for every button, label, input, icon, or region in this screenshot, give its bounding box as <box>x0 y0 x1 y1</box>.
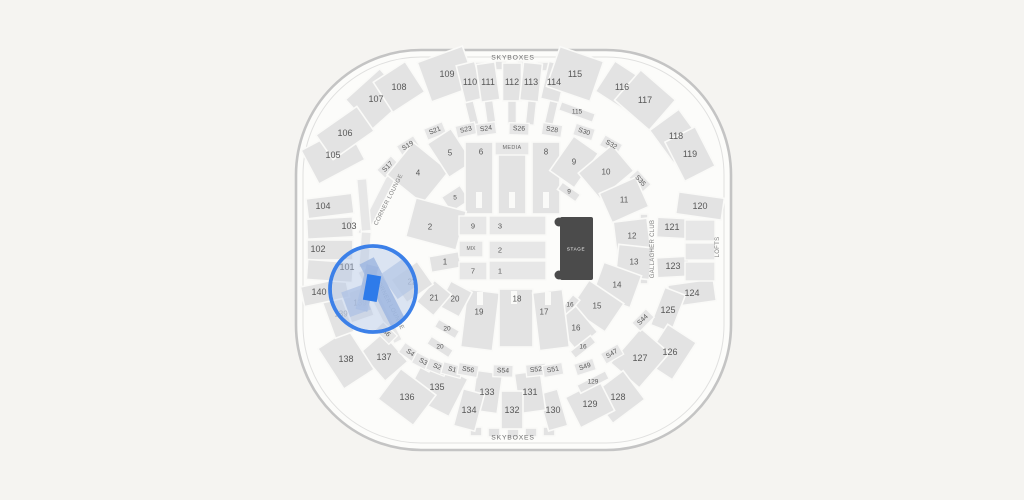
label-119: 119 <box>683 149 697 159</box>
label-i10: 10 <box>602 168 611 177</box>
label-112: 112 <box>505 77 519 87</box>
label-i16a: 16 <box>566 302 574 309</box>
label-132: 132 <box>504 405 519 415</box>
label-125: 125 <box>660 305 675 315</box>
label-109: 109 <box>439 69 454 79</box>
label-124: 124 <box>684 288 699 298</box>
label-media: MEDIA <box>503 145 522 151</box>
label-134: 134 <box>461 405 476 415</box>
label-i9b: 9 <box>567 189 571 196</box>
label-s52: S52 <box>530 366 543 374</box>
label-i4: 4 <box>416 169 421 178</box>
label-120: 120 <box>692 201 707 211</box>
label-i20: 20 <box>451 295 460 304</box>
label-i13: 13 <box>630 258 639 267</box>
label-114: 114 <box>547 77 561 87</box>
label-f3: 3 <box>498 222 502 231</box>
label-115: 115 <box>568 69 582 79</box>
label-131: 131 <box>522 387 537 397</box>
seating-chart-page: STAGE 107 108 109 110 111 112 113 114 11… <box>0 0 1024 500</box>
label-i16c: 16 <box>579 344 587 351</box>
label-i6: 6 <box>479 148 484 157</box>
label-i8: 8 <box>544 148 549 157</box>
skyboxes-bottom-label: SKYBOXES <box>491 435 534 442</box>
label-i21: 21 <box>430 294 439 303</box>
label-i5: 5 <box>448 149 453 158</box>
label-116: 116 <box>615 82 629 92</box>
label-130: 130 <box>545 405 560 415</box>
label-108: 108 <box>391 82 406 92</box>
venue-seat-map[interactable]: STAGE 107 108 109 110 111 112 113 114 11… <box>0 0 1024 500</box>
label-140: 140 <box>311 287 326 297</box>
label-s26: S26 <box>513 125 526 132</box>
label-f7: 7 <box>471 267 475 276</box>
label-107: 107 <box>368 94 383 104</box>
label-138: 138 <box>338 354 353 364</box>
loft-box-2[interactable] <box>685 243 715 260</box>
label-117: 117 <box>638 95 652 105</box>
label-129-arc: 129 <box>588 379 599 386</box>
label-106: 106 <box>337 128 352 138</box>
label-f1: 1 <box>498 267 502 276</box>
label-118: 118 <box>669 131 683 141</box>
loft-box-3[interactable] <box>685 262 715 281</box>
label-i20b: 20 <box>443 326 451 333</box>
label-126: 126 <box>662 347 677 357</box>
label-110: 110 <box>463 77 477 87</box>
label-137: 137 <box>376 352 391 362</box>
lofts-label: LOFTS <box>715 237 721 258</box>
label-103: 103 <box>341 221 356 231</box>
label-f9: 9 <box>471 222 475 231</box>
label-127: 127 <box>632 353 647 363</box>
label-123: 123 <box>665 261 680 271</box>
stage-label: STAGE <box>567 247 585 252</box>
label-i12: 12 <box>628 232 637 241</box>
label-104: 104 <box>315 201 330 211</box>
label-i9: 9 <box>572 158 577 167</box>
label-135: 135 <box>429 382 444 392</box>
label-i18: 18 <box>513 295 522 304</box>
label-i2: 2 <box>428 223 433 232</box>
label-102: 102 <box>310 244 325 254</box>
label-113: 113 <box>524 77 538 87</box>
label-i16b: 16 <box>572 324 581 333</box>
label-121: 121 <box>664 222 679 232</box>
label-105: 105 <box>325 150 340 160</box>
label-136: 136 <box>399 392 414 402</box>
label-115-arc: 115 <box>572 109 583 116</box>
label-129: 129 <box>582 399 597 409</box>
label-111: 111 <box>481 77 495 87</box>
skyboxes-top-label: SKYBOXES <box>491 55 534 62</box>
label-f2: 2 <box>498 246 502 255</box>
label-s54: S54 <box>497 367 510 374</box>
label-i5b: 5 <box>453 195 457 202</box>
gallagher-club-label: GALLAGHER CLUB <box>650 220 656 279</box>
label-i15: 15 <box>593 302 602 311</box>
label-133: 133 <box>479 387 494 397</box>
label-i14: 14 <box>613 281 622 290</box>
label-128: 128 <box>610 392 625 402</box>
label-i11: 11 <box>620 196 629 205</box>
label-i1: 1 <box>443 258 448 267</box>
label-i19: 19 <box>475 308 484 317</box>
label-i17: 17 <box>540 308 549 317</box>
label-mix: MIX <box>467 246 477 252</box>
stage: STAGE <box>555 217 594 280</box>
label-i20c: 20 <box>436 344 444 351</box>
loft-box-1[interactable] <box>685 220 715 241</box>
